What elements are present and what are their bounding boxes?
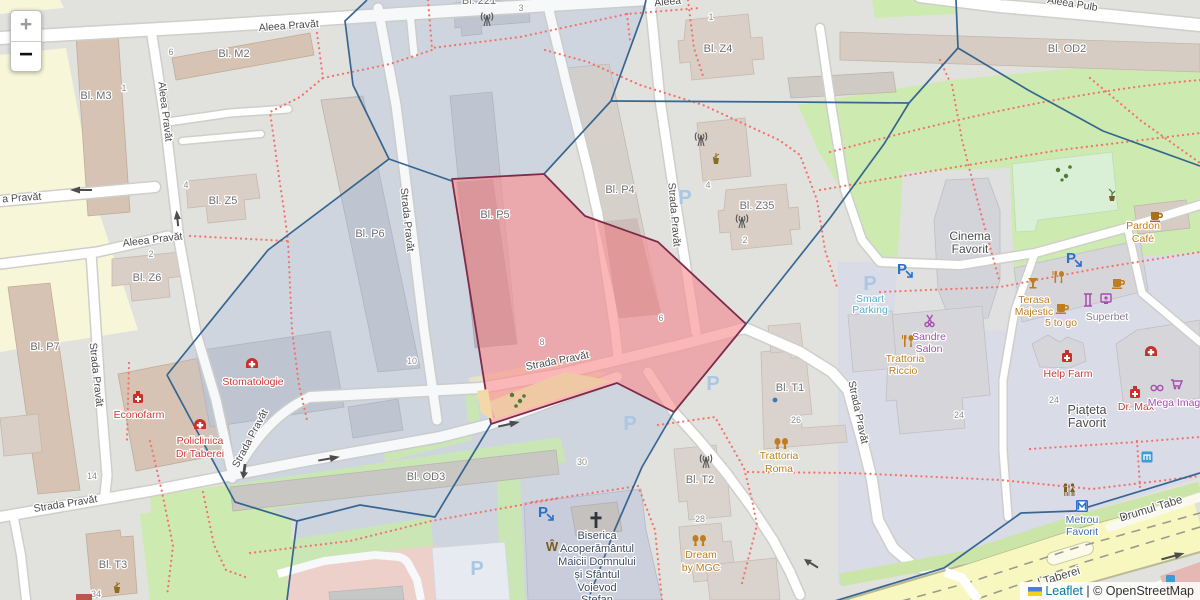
svg-text:Roma: Roma: [765, 463, 793, 475]
svg-text:Acoperământul: Acoperământul: [560, 543, 634, 555]
svg-text:Ștefan: Ștefan: [581, 594, 613, 600]
svg-text:Bl. 221: Bl. 221: [462, 0, 496, 7]
svg-text:Stomatologie: Stomatologie: [222, 376, 283, 388]
svg-text:Policlinica: Policlinica: [177, 435, 224, 447]
svg-text:Sandre: Sandre: [912, 331, 946, 343]
svg-text:Café: Café: [1132, 233, 1154, 245]
svg-text:Bl. OD3: Bl. OD3: [407, 471, 446, 483]
svg-text:Bl. Z35: Bl. Z35: [740, 200, 775, 212]
svg-text:Favorit: Favorit: [1066, 526, 1098, 538]
svg-text:1: 1: [121, 83, 126, 93]
svg-text:1: 1: [708, 12, 713, 22]
svg-text:Bl. Z5: Bl. Z5: [209, 195, 238, 207]
svg-text:P: P: [706, 373, 719, 395]
svg-text:2: 2: [742, 235, 747, 245]
svg-text:24: 24: [954, 410, 964, 420]
svg-text:Voievod: Voievod: [577, 582, 616, 594]
svg-text:Terasa: Terasa: [1018, 294, 1050, 306]
svg-text:8: 8: [539, 337, 544, 347]
svg-text:Biserica: Biserica: [577, 530, 617, 542]
svg-text:Dr Taberei: Dr Taberei: [176, 448, 224, 460]
svg-text:24: 24: [1049, 395, 1059, 405]
svg-text:6: 6: [168, 47, 173, 57]
svg-text:Favorit: Favorit: [1068, 416, 1107, 430]
svg-text:Bl. M2: Bl. M2: [218, 48, 249, 60]
svg-text:6: 6: [658, 313, 663, 323]
svg-text:P: P: [623, 413, 636, 435]
svg-text:Econofarm: Econofarm: [114, 409, 165, 421]
svg-text:Bl. P7: Bl. P7: [30, 341, 59, 353]
svg-text:Bl. Z4: Bl. Z4: [704, 43, 733, 55]
svg-text:Bl. OD2: Bl. OD2: [1048, 43, 1087, 55]
svg-text:Bl. P4: Bl. P4: [605, 184, 634, 196]
svg-text:14: 14: [87, 471, 97, 481]
svg-text:Riccio: Riccio: [889, 365, 918, 377]
svg-text:3: 3: [518, 3, 523, 13]
svg-text:P: P: [1066, 250, 1076, 267]
svg-text:Bl. M3: Bl. M3: [80, 90, 111, 102]
svg-text:Cinema: Cinema: [949, 229, 991, 243]
svg-text:Bl. T1: Bl. T1: [776, 382, 805, 394]
svg-text:Help Farm: Help Farm: [1043, 368, 1092, 380]
svg-text:Maicii Domnului: Maicii Domnului: [558, 556, 636, 568]
svg-text:4: 4: [183, 180, 188, 190]
svg-text:Bl. Z6: Bl. Z6: [133, 272, 162, 284]
svg-text:34: 34: [91, 589, 101, 599]
svg-text:P: P: [678, 187, 691, 209]
svg-text:4: 4: [705, 180, 710, 190]
svg-text:P: P: [897, 261, 907, 278]
svg-text:Mega Imag: Mega Imag: [1148, 397, 1200, 409]
svg-text:Piațeta: Piațeta: [1068, 403, 1107, 417]
svg-text:30: 30: [577, 457, 587, 467]
svg-text:Bl. P6: Bl. P6: [355, 228, 384, 240]
svg-text:Ŵ: Ŵ: [546, 539, 559, 554]
svg-text:5 to go: 5 to go: [1045, 317, 1077, 329]
svg-text:Bl. T2: Bl. T2: [686, 474, 715, 486]
svg-text:P: P: [863, 273, 876, 295]
svg-text:10: 10: [407, 356, 417, 366]
svg-text:și Sfântul: și Sfântul: [574, 569, 619, 581]
svg-text:Metrou: Metrou: [1066, 514, 1099, 526]
svg-text:by MGC: by MGC: [682, 562, 721, 574]
svg-text:26: 26: [791, 415, 801, 425]
svg-text:2: 2: [148, 249, 153, 259]
svg-text:Favorit: Favorit: [952, 242, 989, 256]
svg-text:P: P: [538, 504, 548, 521]
svg-text:Salon: Salon: [916, 343, 943, 355]
svg-text:Bl. P5: Bl. P5: [480, 209, 509, 221]
svg-text:Bl. T3: Bl. T3: [99, 559, 128, 571]
svg-text:28: 28: [695, 514, 705, 524]
svg-text:Trattoria: Trattoria: [760, 450, 799, 462]
svg-text:P: P: [470, 558, 483, 580]
svg-text:Dream: Dream: [685, 549, 717, 561]
svg-text:Parking: Parking: [852, 304, 888, 316]
svg-text:Superbet: Superbet: [1086, 311, 1129, 323]
